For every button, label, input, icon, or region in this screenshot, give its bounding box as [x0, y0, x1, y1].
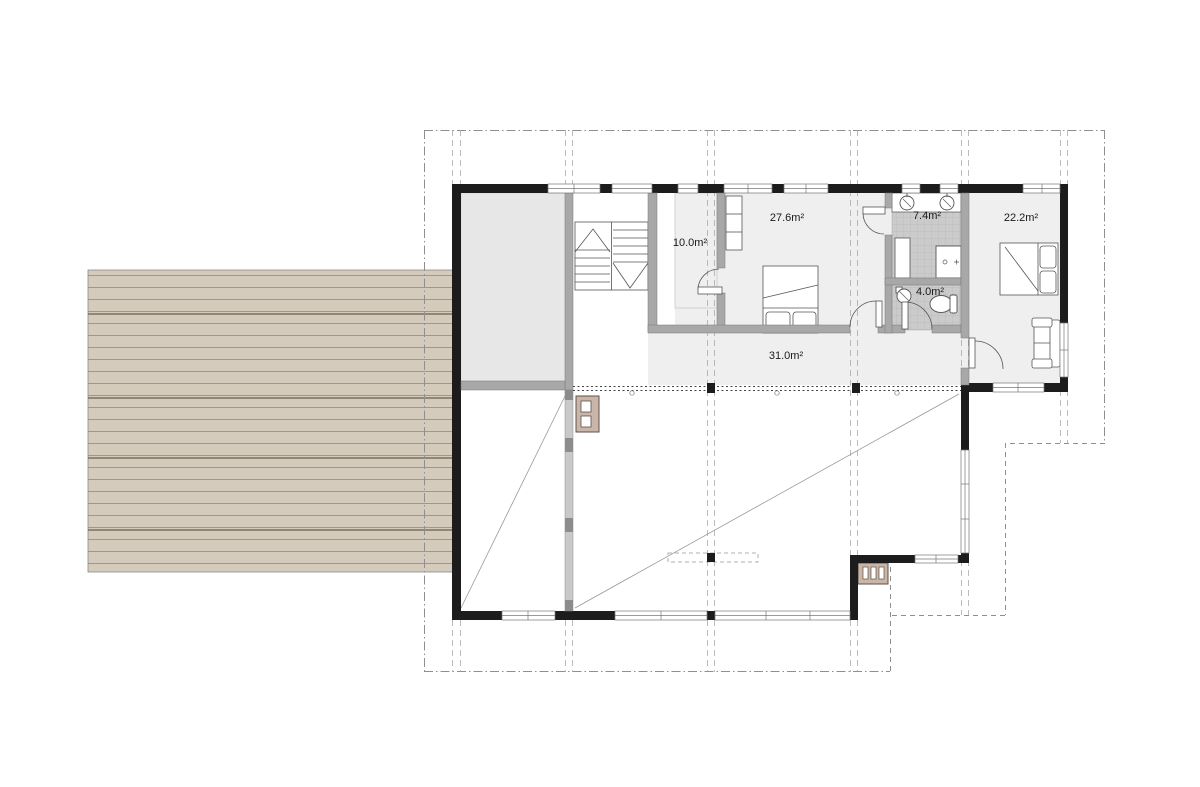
window	[548, 184, 600, 193]
room-label-wc: 4.0m²	[916, 286, 944, 298]
room-label-landing: 31.0m²	[769, 350, 804, 362]
room-label-bedroom-1: 27.6m²	[770, 212, 805, 224]
railing-post	[852, 383, 860, 393]
storage-room-floor	[461, 193, 565, 381]
deck	[88, 270, 455, 572]
room-label-bathroom: 7.4m²	[913, 210, 941, 222]
window	[502, 611, 555, 620]
double-bed-symbol	[763, 266, 818, 333]
wardrobe-symbol	[726, 196, 742, 250]
window	[993, 383, 1044, 392]
stair-symbol	[575, 222, 648, 290]
window	[612, 184, 652, 193]
floor-plan-canvas: 10.0m² 27.6m² 7.4m² 4.0m² 22.2m² 31.0m²	[0, 0, 1200, 787]
shower-symbol	[936, 246, 961, 278]
fireplace-flue-symbol	[858, 563, 888, 584]
window	[715, 611, 850, 620]
window	[784, 184, 828, 193]
sofa-symbol	[1032, 318, 1060, 368]
window	[615, 611, 707, 620]
double-bed-symbol	[1000, 243, 1058, 295]
window	[915, 555, 958, 563]
gallery-low-wall	[565, 390, 573, 611]
window	[902, 184, 920, 193]
fireplace-flue-symbol	[576, 396, 599, 432]
window	[940, 184, 958, 193]
window	[724, 184, 772, 193]
window	[1023, 184, 1060, 193]
window	[678, 184, 698, 193]
window	[1060, 323, 1068, 377]
window	[961, 450, 969, 553]
post	[707, 553, 715, 562]
floor-plan-page: 10.0m² 27.6m² 7.4m² 4.0m² 22.2m² 31.0m²	[0, 0, 1200, 787]
bathroom-cabinet	[895, 238, 910, 278]
stair-void-strip	[657, 193, 675, 325]
railing-post	[707, 383, 715, 393]
room-label-bedroom-2: 22.2m²	[1004, 212, 1039, 224]
floor-fills	[461, 193, 1060, 611]
room-label-hall: 10.0m²	[673, 237, 708, 249]
